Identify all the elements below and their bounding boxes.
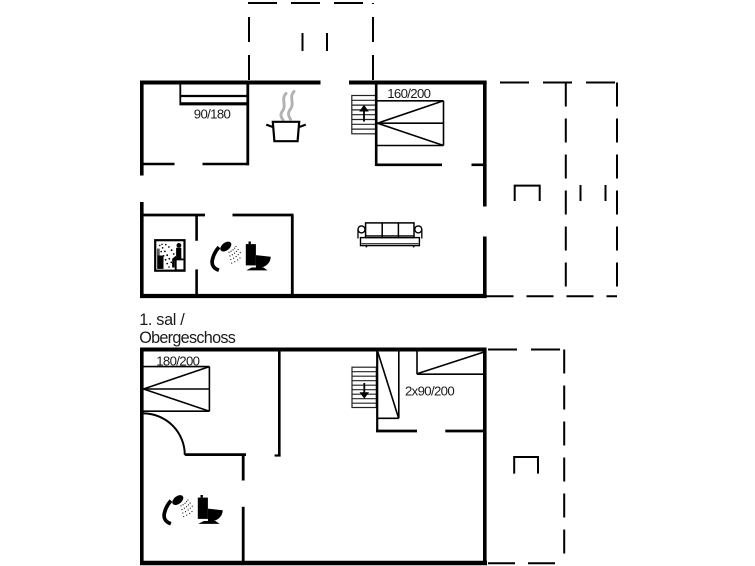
svg-text:2x90/200: 2x90/200 [405,384,454,399]
svg-text:1. sal /: 1. sal / [139,311,185,329]
svg-text:180/200: 180/200 [156,353,199,368]
svg-text:160/200: 160/200 [387,86,430,101]
svg-text:90/180: 90/180 [194,107,231,122]
svg-text:Obergeschoss: Obergeschoss [139,329,236,347]
